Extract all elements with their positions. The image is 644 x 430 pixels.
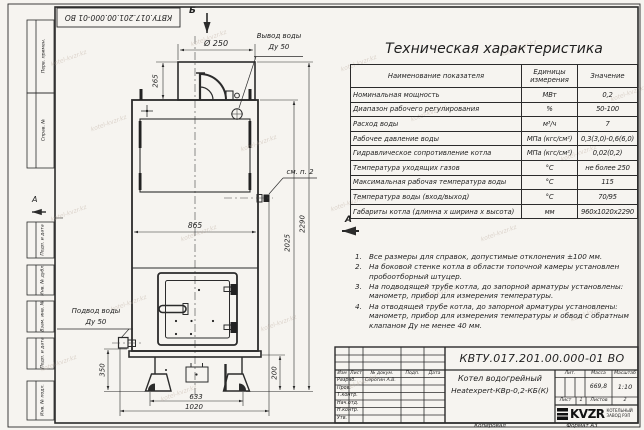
spec-row: Диапазон рабочего регулирования%50-100 — [351, 102, 638, 117]
notes-list: 1. Все размеры для справок, допустимые о… — [352, 252, 637, 331]
note-item: 3. На подводящей трубе котла, до запорно… — [352, 282, 637, 301]
dim-2290: 2290 — [300, 215, 307, 233]
spec-cell: Температура воды (вход/выход) — [351, 190, 522, 205]
note-number: 1. — [352, 252, 369, 261]
spec-cell: 960х1020х2290 — [578, 204, 638, 219]
rev-col-list: Лист — [349, 372, 363, 377]
margin-label-ref-number: Справ. № — [43, 119, 48, 141]
margin-label-inv-orig: Инв. № подл. — [42, 384, 47, 416]
margin-label-inv-dupl: Инв. № дубл. — [42, 264, 47, 295]
dim-2025: 2025 — [285, 234, 292, 252]
spec-cell: % — [522, 102, 578, 117]
rev-col-date: Дата — [424, 372, 445, 377]
boiler-door — [158, 273, 238, 345]
company-logo: KVZR КОТЕЛЬНЫЙ ЗАВОД РЭП — [557, 406, 637, 421]
spec-row: Расход водым³/ч7 — [351, 117, 638, 132]
outlet-label-line2: Ду 50 — [253, 44, 305, 51]
spec-cell: Максимальная рабочая температура воды — [351, 175, 522, 190]
note-number: 2. — [352, 262, 369, 281]
role-dept-head: Нач.отд. — [337, 402, 358, 407]
rev-col-sign: Подп. — [401, 372, 424, 377]
spec-cell: МПа (кгс/см²) — [522, 146, 578, 161]
spec-cell: 7 — [578, 117, 638, 132]
dim-265: 265 — [153, 74, 160, 87]
product-name-line1: Котел водогрейный — [446, 375, 554, 383]
dim-865: 865 — [180, 222, 210, 230]
spec-row: Номинальная мощностьМВт0,2 — [351, 88, 638, 103]
spec-cell: °С — [522, 190, 578, 205]
spec-cell: не более 250 — [578, 160, 638, 175]
logo-text: KVZR — [570, 407, 605, 421]
sheets-value: 2 — [612, 399, 638, 404]
spec-cell: °С — [522, 160, 578, 175]
title-block-doc-number: КВТУ.017.201.00.000-01 ВО — [447, 353, 637, 364]
spec-cell: Габариты котла (длинна х ширина х высота… — [351, 204, 522, 219]
spec-cell: мм — [522, 204, 578, 219]
rev-col-docnum: № докум. — [363, 372, 401, 377]
role-n-control: Н.контр. — [337, 409, 358, 414]
spec-cell: 0,3(3,0)-0,6(6,0) — [578, 131, 638, 146]
product-name-line2: Heatexpert-КВр-0,2-КБ(К) — [446, 387, 554, 394]
margin-label-repl-inv: Взам. инв. № — [42, 300, 47, 331]
spec-cell: Гидравлическое сопротивление котла — [351, 146, 522, 161]
dim-350: 350 — [100, 363, 107, 376]
role-approved: Утв. — [337, 417, 347, 422]
spec-header-row: Наименование показателя Единицы измерени… — [351, 65, 638, 88]
leader-lines — [57, 57, 317, 339]
spec-header-value: Значение — [578, 65, 638, 88]
view-marker-b: Б — [189, 7, 196, 16]
spec-cell: °С — [522, 175, 578, 190]
sheet-value: 1 — [576, 399, 586, 404]
scale-label: Масштаб — [612, 372, 638, 377]
see-note-label: см. п. 2 — [282, 169, 318, 176]
note-item: 4. На отводящей трубе котла, до запорной… — [352, 302, 637, 330]
margin-label-sign-date-2: Подп. и дата — [42, 337, 47, 368]
sheets-label: Листов — [586, 399, 612, 404]
mass-value: 669,8 — [585, 384, 612, 390]
sheet-label: Лист — [555, 399, 576, 404]
spec-row: Гидравлическое сопротивление котлаМПа (к… — [351, 146, 638, 161]
dim-200: 200 — [272, 366, 279, 379]
spec-cell: 50-100 — [578, 102, 638, 117]
spec-cell: Расход воды — [351, 117, 522, 132]
zone-marker-a-left: А — [32, 196, 37, 204]
spec-header-units: Единицы измерения — [522, 65, 578, 88]
spec-table: Наименование показателя Единицы измерени… — [350, 64, 638, 219]
dim-633: 633 — [166, 394, 226, 401]
spec-row: Максимальная рабочая температура воды°С1… — [351, 175, 638, 190]
developer-name: Серогин А.В. — [365, 379, 396, 384]
note-text: На отводящей трубе котла, до запорной ар… — [369, 302, 637, 330]
logo-subtitle: КОТЕЛЬНЫЙ ЗАВОД РЭП — [607, 409, 633, 418]
note-number: 3. — [352, 282, 369, 301]
inlet-label-line2: Ду 50 — [58, 319, 134, 326]
role-developed: Разраб. — [337, 379, 356, 384]
spec-table-title: Техническая характеристика — [355, 42, 633, 56]
note-text: На подводящей трубе котла, до запорной а… — [369, 282, 637, 301]
footer-copied: Копировал — [455, 424, 525, 430]
note-item: 1. Все размеры для справок, допустимые о… — [352, 252, 637, 261]
note-number: 4. — [352, 302, 369, 330]
footer-format: Формат А3 — [550, 424, 614, 430]
note-text: Все размеры для справок, допустимые откл… — [369, 252, 637, 261]
role-checked: Пров. — [337, 387, 351, 392]
spec-row: Температура воды (вход/выход)°С70/95 — [351, 190, 638, 205]
spec-cell: 0,2 — [578, 88, 638, 103]
spec-cell: МПа (кгс/см²) — [522, 131, 578, 146]
top-stamp-doc-number: КВТУ.017.201.00.000-01 ВО — [57, 8, 180, 27]
spec-cell: 115 — [578, 175, 638, 190]
spec-row: Рабочее давление водыМПа (кгс/см²)0,3(3,… — [351, 131, 638, 146]
spec-cell: м³/ч — [522, 117, 578, 132]
note-item: 2. На боковой стенке котла в области топ… — [352, 262, 637, 281]
mass-label: Масса — [585, 372, 612, 377]
logo-subtitle-line2: ЗАВОД РЭП — [607, 414, 633, 419]
rev-col-izm: Изм — [335, 372, 349, 377]
spec-cell: 0,02(0,2) — [578, 146, 638, 161]
spec-row: Габариты котла (длинна х ширина х высота… — [351, 204, 638, 219]
dim-1020: 1020 — [164, 404, 224, 411]
logo-emblem-icon — [557, 408, 568, 420]
spec-cell: Рабочее давление воды — [351, 131, 522, 146]
spec-cell: 70/95 — [578, 190, 638, 205]
dim-flue-diameter: Ø 250 — [194, 40, 238, 48]
margin-label-sign-date-1: Подп. и дата — [42, 224, 47, 255]
lit-label: Лит. — [555, 372, 585, 377]
scale-value: 1:10 — [612, 384, 638, 391]
inlet-label-line1: Подвод воды — [58, 308, 134, 315]
outlet-label-line1: Вывод воды — [253, 33, 305, 40]
drawing-sheet: kotel-kvzr.kz kotel-kvzr.kz kotel-kvzr.k… — [0, 0, 644, 430]
role-t-control: Т.контр. — [337, 394, 358, 399]
spec-cell: Диапазон рабочего регулирования — [351, 102, 522, 117]
spec-row: Температура уходящих газов°Сне более 250 — [351, 160, 638, 175]
spec-header-name: Наименование показателя — [351, 65, 522, 88]
spec-cell: МВт — [522, 88, 578, 103]
spec-cell: Температура уходящих газов — [351, 160, 522, 175]
margin-label-first-use: Перв. примен. — [43, 39, 48, 74]
note-text: На боковой стенке котла в области топочн… — [369, 262, 637, 281]
spec-cell: Номинальная мощность — [351, 88, 522, 103]
